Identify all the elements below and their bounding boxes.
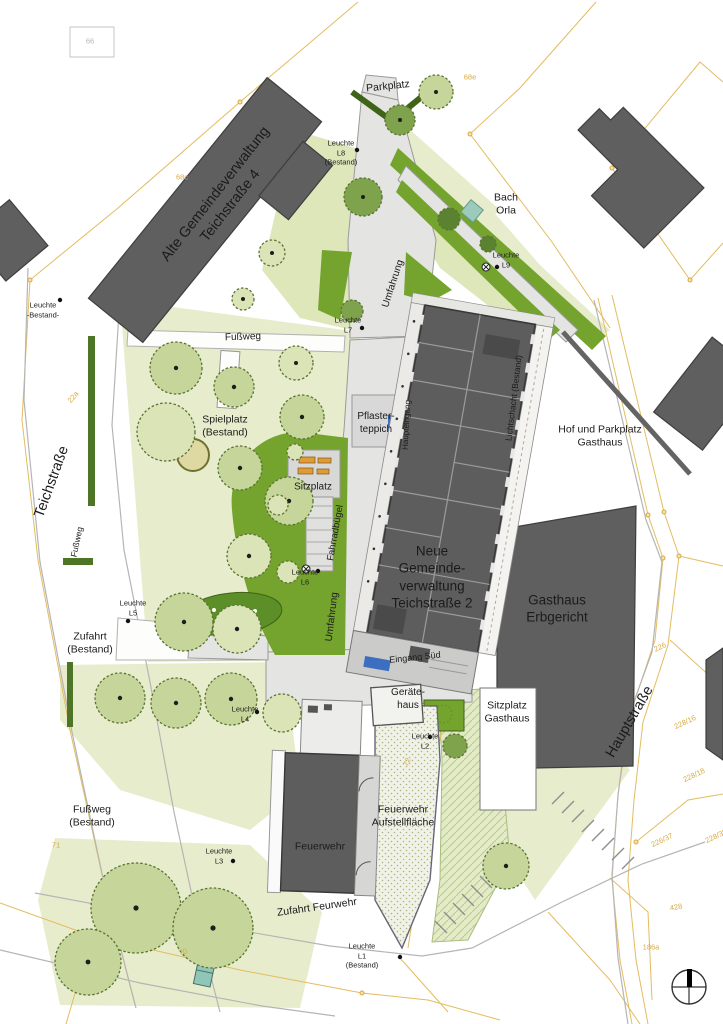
site-plan-map <box>0 0 723 1024</box>
light-l7 <box>360 326 364 330</box>
site-plan: ParkplatzLeuchte L8 (Bestand)Alte Gemein… <box>0 0 723 1024</box>
building-top-right <box>552 96 704 248</box>
building-east-edge-2 <box>706 648 723 760</box>
light-l9 <box>495 265 499 269</box>
light-l1 <box>398 955 402 959</box>
light-bestand <box>58 298 62 302</box>
parcel-box <box>70 27 114 57</box>
building-east-edge <box>654 337 723 450</box>
light-l2 <box>428 735 432 739</box>
sitzplatz-gasthaus-terrace <box>480 688 536 810</box>
building-west-edge <box>0 200 48 281</box>
light-l5 <box>126 619 130 623</box>
north-arrow-icon <box>672 969 706 1004</box>
light-l8 <box>355 148 359 152</box>
feuerwehr-aufstellflaeche-area <box>375 705 440 948</box>
light-l6 <box>316 569 320 573</box>
light-l3 <box>231 859 235 863</box>
light-l4 <box>255 710 259 714</box>
building-geraetehaus <box>371 684 424 725</box>
